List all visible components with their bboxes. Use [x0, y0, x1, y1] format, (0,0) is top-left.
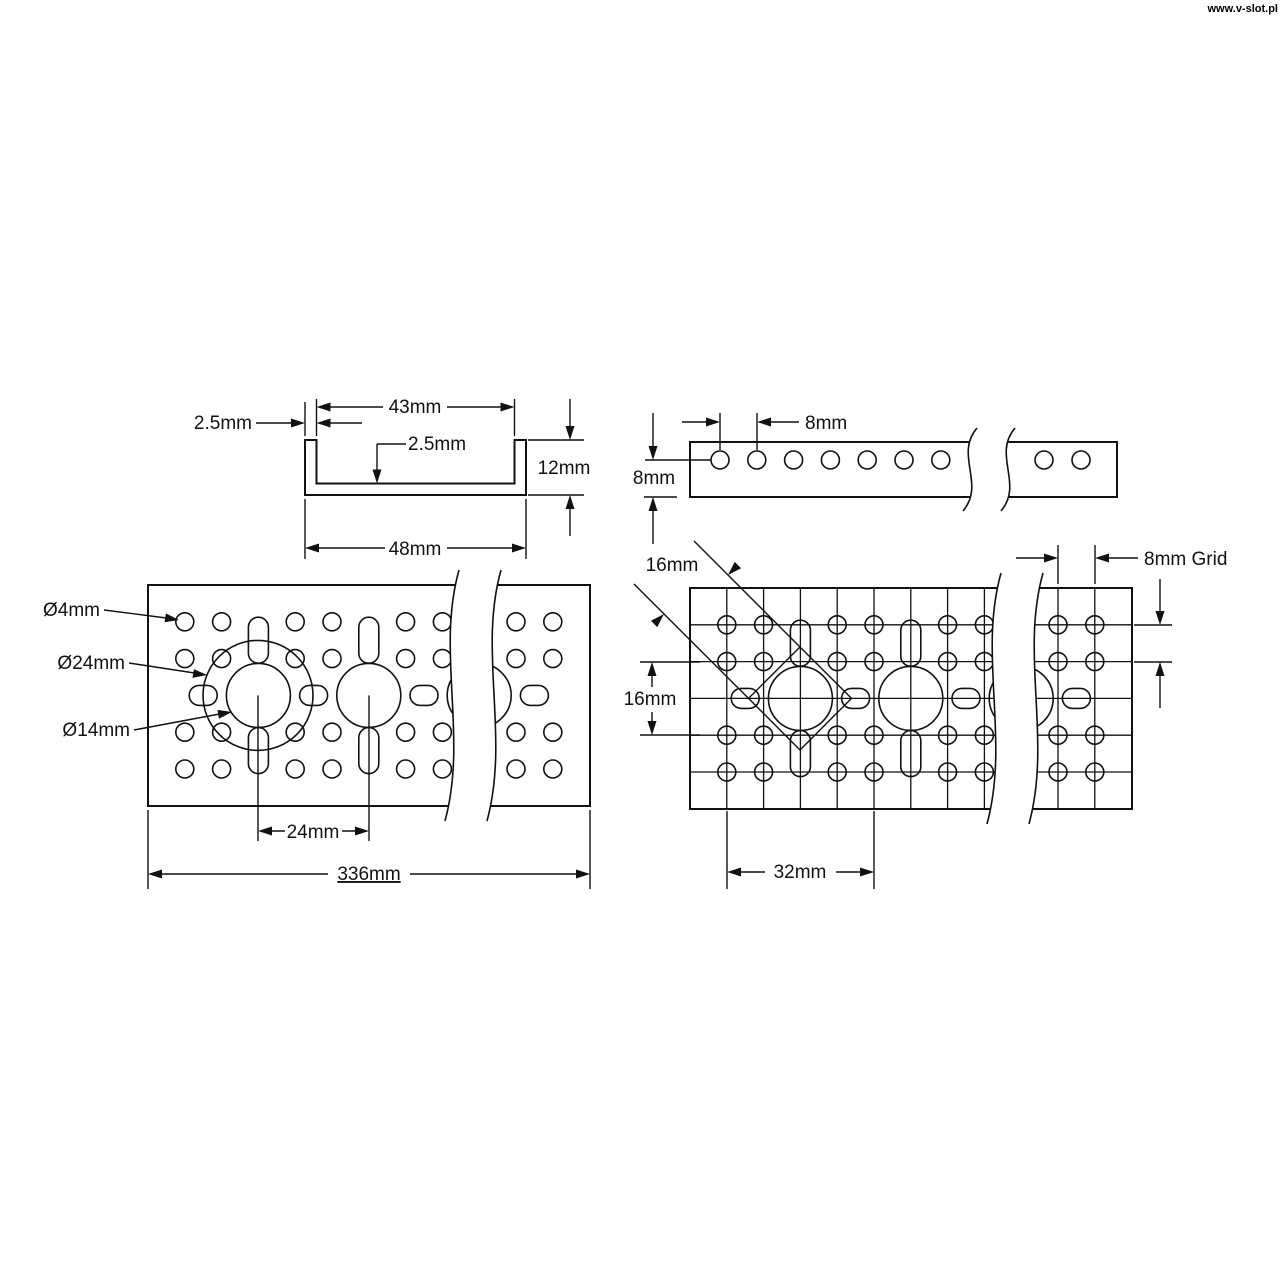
hole-4mm	[544, 760, 562, 778]
arrowhead	[566, 426, 575, 440]
hole-4mm	[1035, 451, 1053, 469]
slot-vertical	[359, 617, 379, 663]
dim-hole-pitch: 8mm	[805, 413, 847, 434]
watermark: www.v-slot.pl	[1207, 3, 1279, 15]
hole-4mm	[176, 723, 194, 741]
view-side-strip: 8mm 8mm	[633, 413, 1117, 544]
hole-4mm	[323, 613, 341, 631]
dim-grid-label: 8mm Grid	[1144, 549, 1227, 570]
hole-4mm	[507, 650, 525, 668]
arrowhead	[512, 544, 526, 553]
hole-4mm	[397, 723, 415, 741]
hole-4mm	[213, 723, 231, 741]
hole-4mm	[433, 650, 451, 668]
arrowhead	[1044, 554, 1058, 563]
arrowhead	[649, 446, 658, 460]
hole-4mm	[176, 613, 194, 631]
arrowhead	[706, 418, 720, 427]
view-grid-plate: 16mm 16mm 8mm Grid 32mm	[624, 541, 1228, 889]
strip-holes	[711, 451, 1090, 469]
dim-edge-offset: 8mm	[633, 468, 675, 489]
hole-4mm	[286, 613, 304, 631]
hole-4mm	[507, 723, 525, 741]
hole-4mm	[544, 723, 562, 741]
hole-4mm	[507, 613, 525, 631]
arrowhead	[317, 403, 331, 412]
hole-centerlines	[258, 695, 369, 841]
dim-inner-width: 43mm	[389, 397, 442, 418]
hole-4mm	[932, 451, 950, 469]
arrowhead	[648, 721, 657, 735]
arrowhead	[355, 827, 369, 836]
dim-outer-width: 48mm	[389, 539, 442, 560]
arrowhead	[728, 562, 741, 575]
dim-hole-spacing: 24mm	[287, 822, 340, 843]
arrowhead	[648, 662, 657, 676]
arrowhead	[373, 470, 382, 484]
hole-4mm	[785, 451, 803, 469]
dim-channel-height: 12mm	[538, 458, 591, 479]
technical-drawing-page: 43mm 2.5mm 2.5mm 12mm 48mm 8mm 8mm	[0, 0, 1280, 1280]
top-view-dimension-lines	[104, 610, 590, 889]
arrowhead	[649, 497, 658, 511]
hole-4mm	[711, 451, 729, 469]
dim-cluster-span: 32mm	[774, 862, 827, 883]
hole-4mm	[507, 760, 525, 778]
hole-4mm	[821, 451, 839, 469]
hole-4mm	[286, 760, 304, 778]
arrowhead	[1156, 662, 1165, 676]
drawing-canvas: 43mm 2.5mm 2.5mm 12mm 48mm 8mm 8mm	[0, 0, 1280, 1280]
hole-4mm	[858, 451, 876, 469]
grid-view-dimension-lines	[634, 541, 1172, 889]
hole-4mm	[397, 650, 415, 668]
hole-4mm	[286, 723, 304, 741]
hole-4mm	[433, 760, 451, 778]
hole-4mm	[433, 723, 451, 741]
arrowhead	[727, 868, 741, 877]
arrowhead	[860, 868, 874, 877]
hole-4mm	[544, 613, 562, 631]
hole-4mm	[286, 650, 304, 668]
hole-4mm	[748, 451, 766, 469]
hole-4mm	[323, 723, 341, 741]
arrowhead	[305, 544, 319, 553]
break-mask	[987, 573, 1043, 824]
arrowhead	[291, 419, 305, 428]
view-cross-section: 43mm 2.5mm 2.5mm 12mm 48mm	[194, 397, 590, 560]
arrowhead	[501, 403, 515, 412]
label-center-hole-dia: Ø14mm	[62, 720, 130, 741]
arrowhead	[566, 495, 575, 509]
arrowhead	[576, 870, 590, 879]
dim-total-length: 336mm	[337, 864, 400, 885]
hole-4mm	[544, 650, 562, 668]
hole-4mm	[397, 613, 415, 631]
hole-4mm	[433, 613, 451, 631]
arrowhead	[757, 418, 771, 427]
arrowhead	[148, 870, 162, 879]
hole-4mm	[213, 650, 231, 668]
arrowhead	[651, 614, 664, 627]
dim-floor-thickness: 2.5mm	[408, 434, 466, 455]
hole-4mm	[213, 613, 231, 631]
hole-4mm	[176, 650, 194, 668]
view-top-plate: Ø4mm Ø24mm Ø14mm 24mm 336mm	[43, 570, 590, 889]
hole-4mm	[1072, 451, 1090, 469]
arrowhead	[317, 419, 331, 428]
arrowhead	[258, 827, 272, 836]
arrowhead	[1095, 554, 1109, 563]
hole-4mm	[895, 451, 913, 469]
hole-4mm	[176, 760, 194, 778]
hole-4mm	[323, 760, 341, 778]
dim-wall-thickness: 2.5mm	[194, 413, 252, 434]
label-bolt-circle-dia: Ø24mm	[57, 653, 125, 674]
break-mask	[445, 570, 501, 821]
slot-horizontal	[520, 685, 548, 705]
label-small-hole-dia: Ø4mm	[43, 600, 100, 621]
dim-diamond-side: 16mm	[646, 555, 699, 576]
arrowhead	[1156, 611, 1165, 625]
slot-horizontal	[410, 685, 438, 705]
dim-row-span: 16mm	[624, 689, 677, 710]
hole-4mm	[323, 650, 341, 668]
arrowhead	[193, 669, 208, 678]
hole-4mm	[397, 760, 415, 778]
hole-4mm	[213, 760, 231, 778]
